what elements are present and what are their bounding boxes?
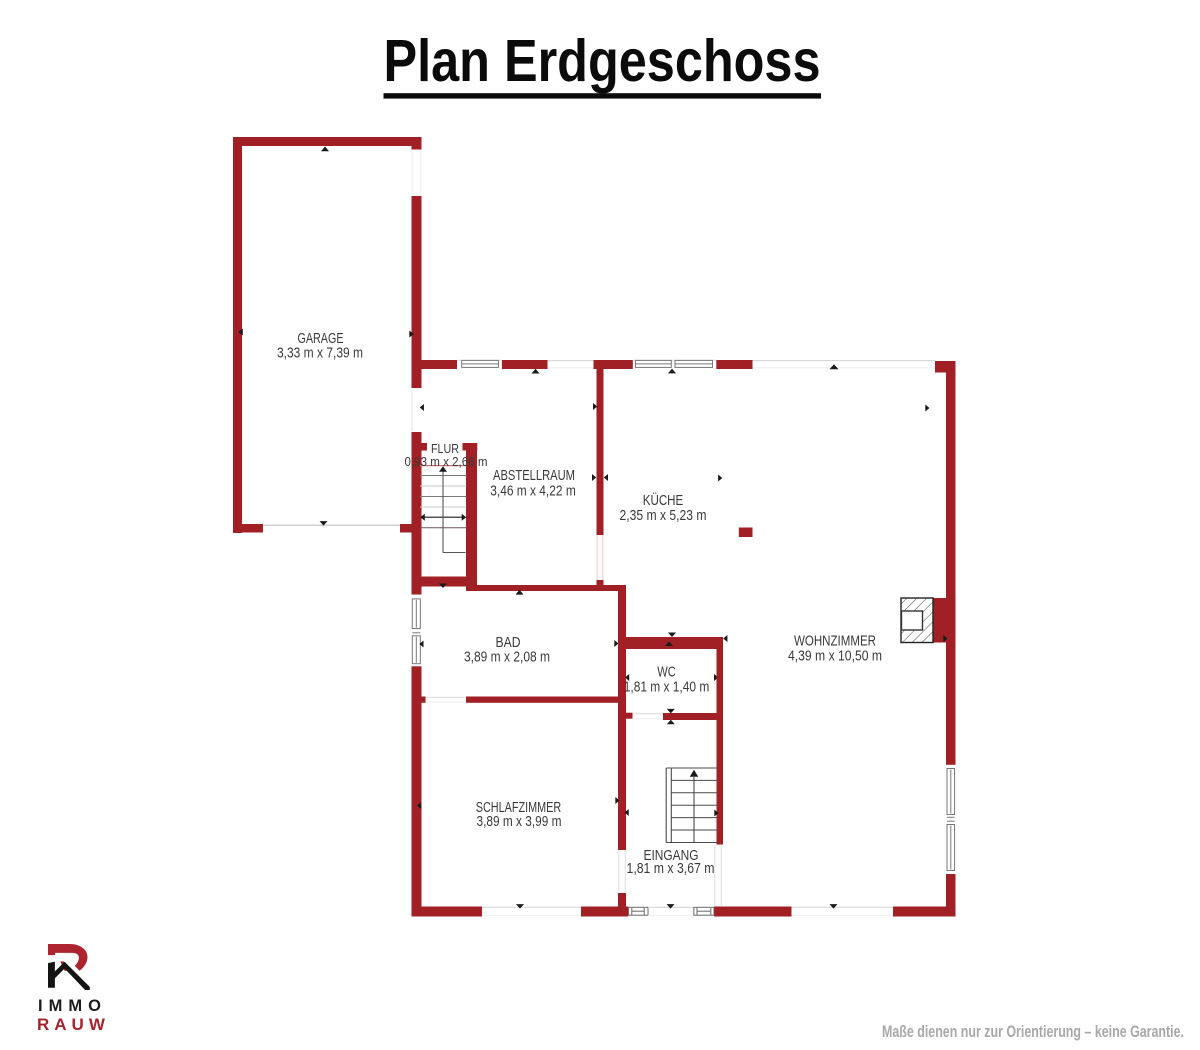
- svg-text:3,89 m x 3,99 m: 3,89 m x 3,99 m: [477, 814, 562, 830]
- svg-text:1,81 m x 3,67 m: 1,81 m x 3,67 m: [627, 861, 715, 877]
- svg-text:1,81 m x 1,40 m: 1,81 m x 1,40 m: [624, 680, 710, 696]
- svg-text:FLUR: FLUR: [431, 442, 459, 456]
- svg-text:ABSTELLRAUM: ABSTELLRAUM: [493, 468, 575, 484]
- svg-text:2,35 m x 5,23 m: 2,35 m x 5,23 m: [620, 508, 707, 524]
- svg-text:3,33 m x 7,39 m: 3,33 m x 7,39 m: [277, 346, 363, 362]
- svg-text:IMMO: IMMO: [38, 997, 107, 1015]
- svg-text:RAUW: RAUW: [37, 1015, 110, 1034]
- svg-text:KÜCHE: KÜCHE: [643, 491, 684, 509]
- svg-text:WC: WC: [657, 665, 676, 681]
- svg-text:WOHNZIMMER: WOHNZIMMER: [794, 634, 876, 650]
- svg-text:0,93 m x 2,66 m: 0,93 m x 2,66 m: [405, 455, 488, 469]
- svg-text:3,89 m x 2,08 m: 3,89 m x 2,08 m: [464, 650, 550, 666]
- svg-text:3,46 m x 4,22 m: 3,46 m x 4,22 m: [490, 484, 576, 500]
- svg-text:4,39 m x 10,50 m: 4,39 m x 10,50 m: [788, 649, 882, 665]
- svg-text:Plan Erdgeschoss: Plan Erdgeschoss: [384, 28, 821, 94]
- svg-text:Maße dienen nur zur Orientieru: Maße dienen nur zur Orientierung – keine…: [882, 1023, 1184, 1041]
